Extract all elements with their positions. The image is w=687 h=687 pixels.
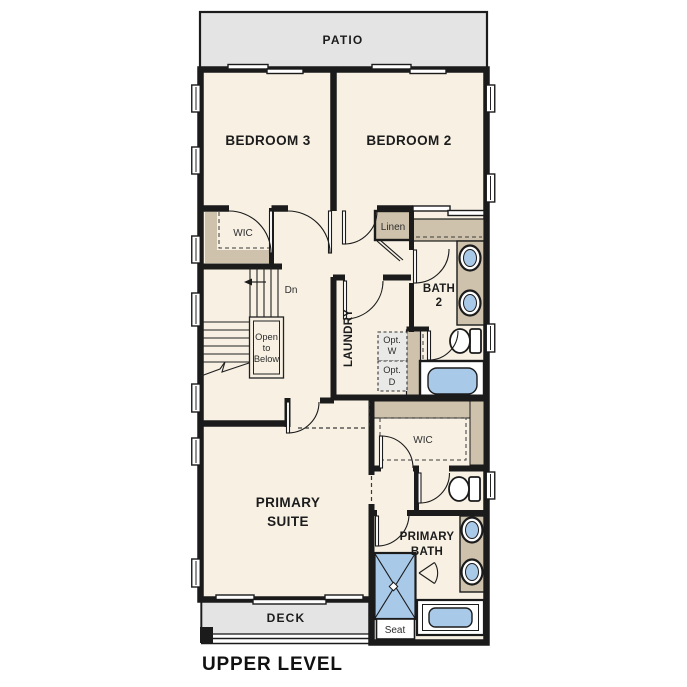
laundry-label: LAUNDRY (343, 309, 355, 367)
primary-sink-icon (462, 518, 483, 543)
opt-dryer-line2: D (389, 377, 396, 387)
window (486, 174, 495, 202)
bedroom2-closet-shelf (413, 219, 484, 241)
opt-washer-line2: W (388, 346, 397, 356)
deck-post (200, 627, 213, 643)
primary-tub-icon (417, 600, 484, 635)
primary-toilet-icon (449, 477, 480, 501)
window (486, 85, 495, 112)
hall-wic-label: WIC (233, 228, 252, 239)
window (486, 324, 495, 352)
window (192, 236, 201, 263)
bath2-label-line1: BATH (423, 283, 455, 295)
optional-washer: Opt. W (378, 332, 407, 361)
linen-label: Linen (381, 222, 405, 233)
window (192, 438, 201, 465)
bedroom2-label: BEDROOM 2 (366, 133, 451, 148)
laundry-counter (407, 330, 421, 396)
open-below-line3: Below (254, 354, 280, 364)
window (192, 559, 201, 587)
window (192, 384, 201, 412)
opt-dryer-line1: Opt. (383, 365, 401, 375)
bath2-sink-icon (460, 291, 481, 316)
optional-dryer: Opt. D (378, 361, 407, 391)
stair-dn-label: Dn (285, 285, 298, 296)
floor-plan-page: PATIO DECK Opt. W Opt. D (0, 0, 687, 687)
deck-area: DECK (200, 600, 372, 644)
patio-area: PATIO (200, 12, 487, 68)
primary-suite-label-line1: PRIMARY (256, 495, 321, 510)
deck-railing (201, 639, 372, 644)
open-below-line1: Open (255, 332, 278, 342)
bath2-toilet-icon (450, 329, 481, 353)
window (192, 293, 201, 326)
floor-plan-drawing: PATIO DECK Opt. W Opt. D (0, 0, 687, 687)
shower-seat-label: Seat (385, 625, 406, 636)
bath2-sink-icon (460, 246, 481, 271)
plan-title: UPPER LEVEL (202, 654, 343, 675)
shower-icon: Seat (375, 553, 416, 639)
deck-label: DECK (267, 611, 306, 625)
window (192, 147, 201, 174)
bedroom3-label: BEDROOM 3 (225, 133, 310, 148)
window (486, 472, 495, 499)
primary-suite-label-line2: SUITE (267, 514, 309, 529)
primary-bath-label-line1: PRIMARY (400, 531, 455, 543)
window (192, 85, 201, 112)
primary-sink-icon (462, 560, 483, 585)
opt-washer-line1: Opt. (383, 335, 401, 345)
primary-bath-label-line2: BATH (411, 546, 443, 558)
bath2-label-line2: 2 (436, 297, 443, 309)
bath2-tub-icon (420, 361, 484, 400)
open-to-below: Open to Below (250, 317, 284, 378)
patio-label: PATIO (323, 33, 364, 47)
primary-wic-label: WIC (413, 435, 432, 446)
open-below-line2: to (263, 343, 271, 353)
